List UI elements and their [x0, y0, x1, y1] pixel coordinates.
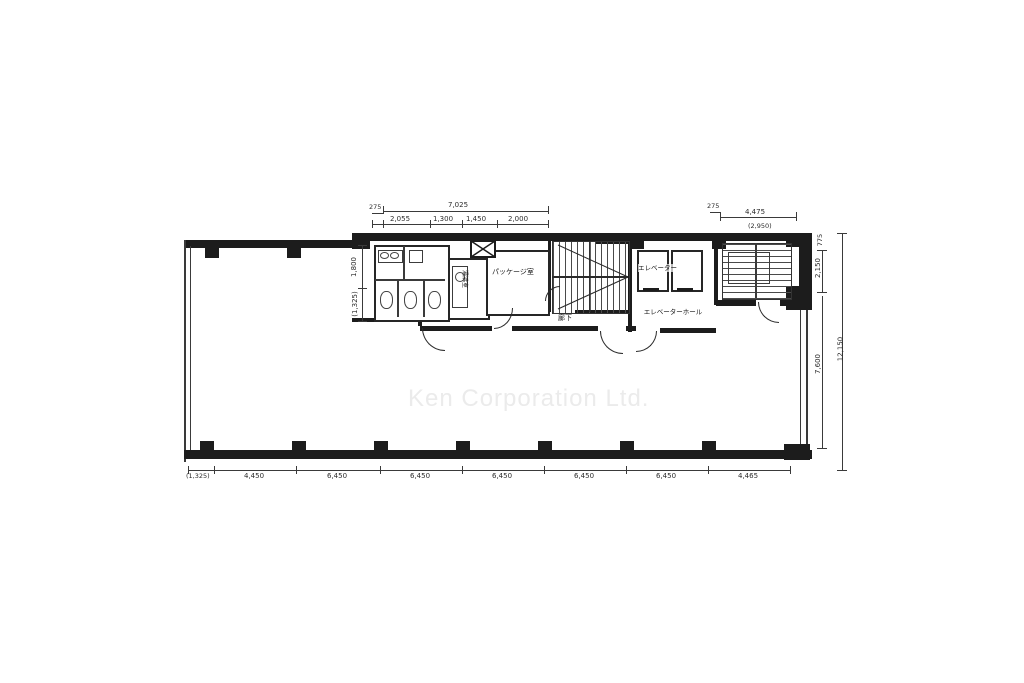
wall-elevhall-east [714, 241, 718, 305]
dim-tick [383, 206, 384, 214]
dim-bottom-seg3: 6,450 [327, 472, 347, 480]
dim-tick [497, 220, 498, 228]
dim-tick [837, 470, 847, 471]
dim-line [372, 213, 383, 214]
wc-stall-wall [397, 281, 399, 317]
dim-bottom-seg4: 6,450 [410, 472, 430, 480]
dim-tick [358, 245, 367, 246]
dim-tick [548, 206, 549, 214]
dim-tick [383, 220, 384, 228]
column [702, 441, 716, 459]
dim-tick [817, 292, 827, 293]
dim-tick [548, 220, 549, 228]
dim-tick [544, 466, 545, 474]
wall-rightcore-south-a [716, 300, 756, 306]
wall-right-outer [806, 305, 808, 452]
wc-toilet [404, 291, 417, 309]
dim-topright-offset: 275 [707, 202, 719, 210]
dim-line [710, 212, 720, 213]
wall-left-inner [190, 246, 191, 458]
dim-right-top: 775 [816, 234, 824, 246]
corridor-label: 廊下 [558, 314, 572, 322]
column [456, 441, 470, 459]
door-arc [636, 331, 657, 352]
dim-tick [626, 466, 627, 474]
column [292, 441, 306, 459]
wall-elevhall-south [660, 328, 716, 333]
dim-bottom-seg2: 4,450 [244, 472, 264, 480]
dim-topleft-seg2: 1,300 [433, 215, 453, 223]
dim-line [188, 470, 790, 471]
dim-tick [214, 466, 215, 474]
floor-plan: 湯沸室 パッケージ室 エレベーター エレベーターホール 廊下 275 7,025 [0, 0, 1024, 683]
dim-tick [837, 233, 847, 234]
wc-urinal [409, 250, 423, 263]
kitchenette-label: 湯沸室 [460, 270, 468, 288]
wall-right-inner [800, 305, 801, 450]
dim-line [822, 250, 823, 292]
dim-tick [720, 212, 721, 221]
column [630, 233, 644, 249]
column [352, 233, 370, 249]
dim-line [372, 224, 548, 225]
stair-diagonals [552, 241, 628, 312]
wall-core-top [352, 233, 812, 241]
dim-bottom-seg5: 6,450 [492, 472, 512, 480]
dim-bottom-seg8: 4,465 [738, 472, 758, 480]
dim-right-upper: 2,150 [814, 258, 822, 278]
dim-topright-note: (2,950) [748, 222, 772, 230]
dim-line [822, 296, 823, 448]
dim-bottom-seg6: 6,450 [574, 472, 594, 480]
column [374, 441, 388, 459]
dim-tick [817, 448, 827, 449]
column [287, 240, 301, 258]
dim-bottom-seg7: 6,450 [656, 472, 676, 480]
wall-bottom [184, 450, 812, 459]
door-arc [758, 302, 779, 323]
door-arc [600, 331, 623, 354]
elevator-hall-label: エレベーターホール [634, 308, 712, 316]
dim-tick [358, 321, 367, 322]
shaft-x-icon [470, 240, 496, 258]
package-room-label: パッケージ室 [492, 268, 534, 276]
elevator-door-1 [643, 288, 659, 291]
column [784, 444, 810, 460]
dim-line [362, 245, 363, 322]
elevator-door-2 [677, 288, 693, 291]
dim-tick [296, 466, 297, 474]
dim-topleft-overall: 7,025 [448, 201, 468, 209]
dim-tick [380, 466, 381, 474]
dim-tick [790, 466, 791, 474]
wc-toilet [380, 291, 393, 309]
wall-left-outer [184, 240, 186, 462]
dim-tick [796, 212, 797, 221]
dim-tick [430, 220, 431, 228]
package-room-outline [486, 250, 550, 316]
elevator-label: エレベーター [638, 264, 677, 272]
wc-basin [390, 252, 399, 259]
dim-topleft-seg4: 2,000 [508, 215, 528, 223]
dim-topleft-seg3: 1,450 [466, 215, 486, 223]
wc-basin [380, 252, 389, 259]
dim-tick [708, 466, 709, 474]
door-arc [422, 328, 445, 351]
wc-divider-v [403, 246, 405, 279]
wc-toilet [428, 291, 441, 309]
dim-tick [358, 288, 367, 289]
dim-right-lower: 7,600 [814, 354, 822, 374]
door-arc [494, 308, 513, 329]
dim-left-upper: 1,800 [350, 257, 358, 277]
dim-tick [817, 250, 827, 251]
dim-topright-width: 4,475 [745, 208, 765, 216]
dim-tick [372, 220, 373, 228]
wall-corridor-south-b [512, 326, 598, 331]
watermark: Ken Corporation Ltd. [408, 385, 649, 413]
column [205, 240, 219, 258]
stair-right-landing [728, 252, 770, 284]
dim-topleft-offset: 275 [369, 203, 381, 211]
dim-line [720, 217, 796, 218]
column [200, 441, 214, 459]
dim-tick [462, 466, 463, 474]
wc-stall-wall [423, 281, 425, 317]
column [620, 441, 634, 459]
dim-right-total: 12,150 [836, 337, 844, 362]
wall-rightcore-south-b [780, 300, 812, 306]
dim-bottom-seg1: (1,325) [186, 472, 210, 480]
wc-divider-h [375, 279, 445, 281]
dim-tick [462, 220, 463, 228]
dim-topleft-seg1: 2,055 [390, 215, 410, 223]
dim-line [383, 211, 548, 212]
dim-left-lower: (1,325) [351, 291, 359, 317]
column [538, 441, 552, 459]
